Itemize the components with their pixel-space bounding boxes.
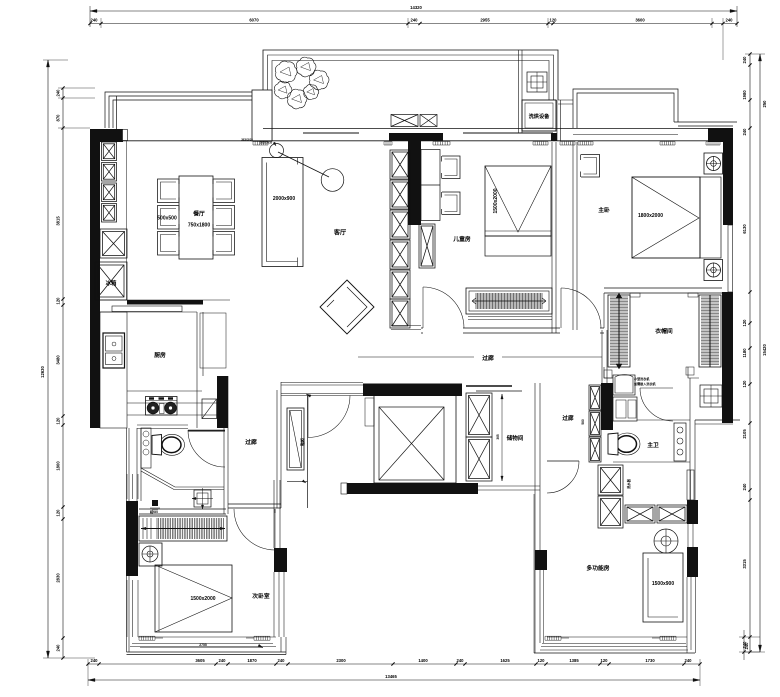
svg-text:13465: 13465 (385, 674, 397, 679)
svg-text:1625: 1625 (500, 658, 510, 663)
svg-text:1980: 1980 (742, 90, 747, 100)
svg-text:120: 120 (56, 509, 61, 517)
svg-text:240: 240 (744, 642, 749, 650)
svg-text:240: 240 (219, 658, 227, 663)
svg-text:如需嵌入洗衣机: 如需嵌入洗衣机 (634, 381, 657, 386)
svg-text:主卫: 主卫 (647, 441, 659, 449)
svg-text:120: 120 (742, 319, 747, 327)
svg-text:2105: 2105 (742, 429, 747, 439)
svg-text:240: 240 (56, 89, 61, 97)
svg-text:6070: 6070 (249, 18, 259, 23)
svg-text:储物间: 储物间 (506, 434, 524, 442)
svg-text:3605: 3605 (195, 658, 205, 663)
svg-text:过廊: 过廊 (245, 438, 257, 446)
svg-text:热水器: 热水器 (626, 478, 631, 488)
svg-text:240: 240 (726, 18, 734, 23)
svg-text:1730: 1730 (645, 658, 655, 663)
svg-text:870: 870 (56, 114, 61, 122)
svg-text:2755: 2755 (199, 643, 207, 647)
svg-text:240: 240 (742, 128, 747, 136)
svg-text:240: 240 (91, 18, 99, 23)
svg-text:2300: 2300 (336, 658, 346, 663)
svg-text:15420: 15420 (762, 344, 767, 356)
svg-text:2955: 2955 (480, 18, 490, 23)
svg-text:3815: 3815 (56, 216, 61, 226)
svg-text:客厅: 客厅 (333, 229, 347, 237)
svg-text:鞋柜: 鞋柜 (299, 438, 305, 446)
svg-text:120: 120 (550, 18, 558, 23)
svg-text:240: 240 (411, 18, 419, 23)
svg-text:鞋600: 鞋600 (150, 509, 158, 514)
svg-text:240: 240 (742, 483, 747, 491)
svg-text:冰箱: 冰箱 (106, 279, 117, 287)
svg-text:1800: 1800 (56, 461, 61, 471)
svg-text:2000x900: 2000x900 (273, 196, 295, 202)
svg-text:儿童房: 儿童房 (452, 235, 471, 243)
svg-text:1500x2000: 1500x2000 (190, 596, 215, 602)
svg-text:1500x900: 1500x900 (652, 581, 674, 587)
svg-text:1400: 1400 (418, 658, 428, 663)
svg-text:38353535: 38353535 (241, 138, 253, 142)
svg-text:多功能房: 多功能房 (586, 564, 609, 572)
svg-text:12630: 12630 (40, 366, 45, 378)
svg-text:365: 365 (496, 434, 500, 440)
svg-text:580: 580 (581, 419, 585, 425)
svg-text:衣帽间: 衣帽间 (655, 327, 673, 335)
svg-text:120: 120 (538, 658, 546, 663)
svg-text:750x1800: 750x1800 (188, 223, 210, 229)
svg-text:14320: 14320 (410, 5, 422, 10)
svg-text:1800x2000: 1800x2000 (638, 213, 663, 219)
svg-text:120: 120 (56, 417, 61, 425)
svg-text:洗烘设备: 洗烘设备 (529, 112, 551, 120)
svg-text:过廊: 过廊 (562, 414, 574, 422)
svg-text:餐厅: 餐厅 (192, 210, 205, 218)
svg-text:120: 120 (742, 380, 747, 388)
svg-text:厨房: 厨房 (154, 351, 166, 359)
svg-text:500x500: 500x500 (157, 216, 177, 222)
svg-text:250: 250 (762, 100, 767, 108)
svg-text:6130: 6130 (742, 224, 747, 234)
svg-text:1870: 1870 (247, 658, 257, 663)
svg-text:过廊: 过廊 (482, 354, 494, 362)
svg-text:120: 120 (56, 297, 61, 305)
svg-text:1500x2000: 1500x2000 (493, 188, 499, 213)
svg-text:2830: 2830 (56, 573, 61, 583)
svg-text:240: 240 (56, 644, 61, 652)
svg-text:240: 240 (742, 56, 747, 64)
svg-text:120: 120 (601, 658, 609, 663)
svg-text:1385: 1385 (569, 658, 579, 663)
svg-text:小型洗衣机: 小型洗衣机 (634, 376, 650, 381)
svg-text:240: 240 (91, 658, 99, 663)
svg-text:240: 240 (685, 658, 693, 663)
svg-text:次卧室: 次卧室 (252, 592, 270, 600)
svg-text:38353535: 38353535 (260, 141, 273, 145)
svg-text:3480: 3480 (56, 355, 61, 365)
svg-text:3600: 3600 (635, 18, 645, 23)
svg-text:240: 240 (278, 658, 286, 663)
svg-text:3315: 3315 (742, 559, 747, 569)
svg-text:1180: 1180 (742, 348, 747, 358)
svg-text:240: 240 (457, 658, 465, 663)
svg-text:主卧: 主卧 (598, 206, 610, 214)
